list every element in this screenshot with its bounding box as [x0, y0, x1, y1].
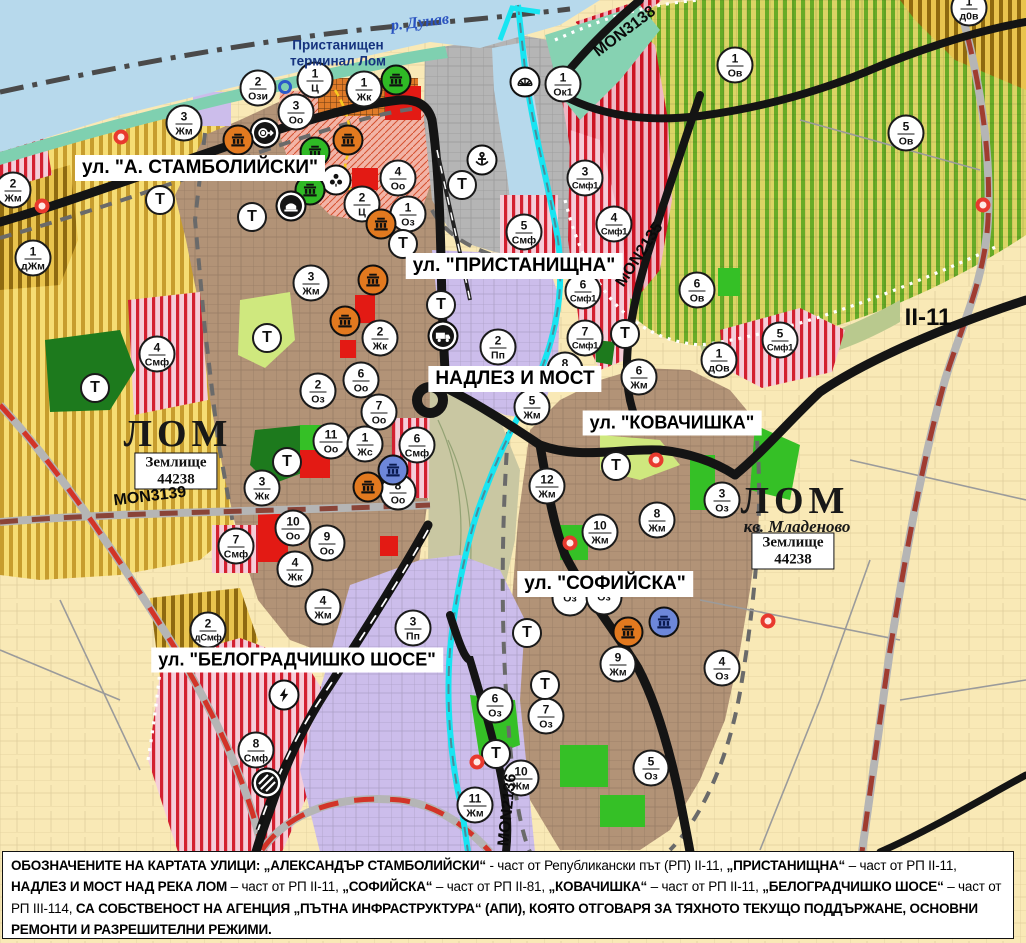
street-label-a-stambolijski: ул. "А. СТАМБОЛИЙСКИ": [75, 155, 325, 181]
footer-segment: НАДЛЕЗ И МОСТ НАД РЕКА ЛОМ: [11, 879, 227, 894]
land-box-line2: 44238: [762, 551, 823, 568]
footer-segment: СА СОБСТВЕНОСТ НА АГЕНЦИЯ „ПЪТНА ИНФРАСТ…: [11, 901, 978, 937]
street-label-pristanishtna: ул. "ПРИСТАНИЩНА": [406, 253, 623, 279]
street-label-belogradchishko-shose: ул. "БЕЛОГРАДЧИШКО ШОСЕ": [151, 648, 443, 673]
street-label-kovachishka: ул. "КОВАЧИШКА": [583, 411, 762, 436]
land-box-line1: Землище: [762, 535, 823, 552]
footer-segment: ОБОЗНАЧЕНИТЕ НА КАРТАТА УЛИЦИ: „АЛЕКСАНД…: [11, 858, 486, 873]
footer-segment: – част от РП II-11,: [647, 879, 762, 894]
city-label-lom-left: ЛОМ: [124, 412, 233, 456]
footer-segment: „ПРИСТАНИЩНА“: [727, 858, 846, 873]
footer-segment: – част от РП II-11,: [845, 858, 957, 873]
port-terminal-label: Пристанищен терминал Лом: [263, 37, 413, 68]
zoning-map: 1д0в1Ц2Ози1Жк1Ок11Ов3Оо3Жм5Ов4Оо3Смф12Жм…: [0, 0, 1026, 943]
footer-segment: – част от РП II-81,: [432, 879, 548, 894]
footer-segment: „КОВАЧИШКА“: [548, 879, 647, 894]
land-parcel-box-right: Землище 44238: [751, 533, 834, 570]
land-box-line1: Землище: [145, 455, 206, 472]
road-number-mon3139: MON3139: [113, 484, 188, 511]
footer-segment: - част от Републикански път (РП) II-11,: [486, 858, 727, 873]
road-number-ii11: II-11: [905, 304, 952, 332]
footer-segment: – част от РП II-11,: [227, 879, 342, 894]
labels-layer: р. Дунав Пристанищен терминал Лом ЛОМ ЛО…: [0, 0, 1026, 943]
road-number-mon2136: MON2136: [495, 773, 521, 847]
footer-segment: „СОФИЙСКА“: [342, 879, 432, 894]
street-label-sofijska: ул. "СОФИЙСКА": [517, 571, 693, 597]
footer-segment: „БЕЛОГРАДЧИШКО ШОСЕ“: [762, 879, 943, 894]
street-label-nadlez-i-most: НАДЛЕЗ И МОСТ: [428, 366, 601, 392]
footer-note: ОБОЗНАЧЕНИТЕ НА КАРТАТА УЛИЦИ: „АЛЕКСАНД…: [2, 851, 1014, 939]
road-number-mon3138: MON3138: [590, 3, 659, 61]
river-danube-label: р. Дунав: [390, 11, 450, 36]
